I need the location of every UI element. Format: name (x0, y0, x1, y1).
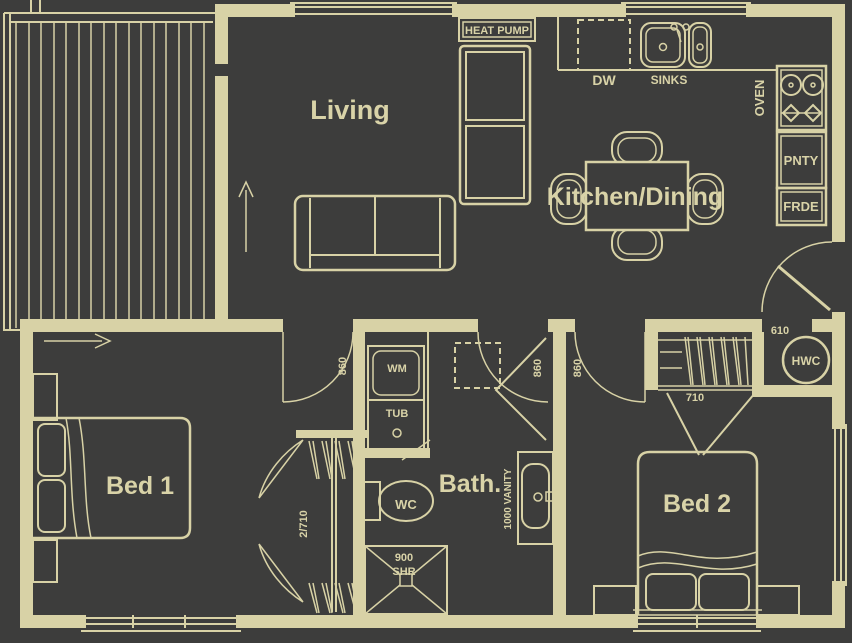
living-room (239, 18, 535, 270)
deck-boards (16, 22, 204, 328)
walls (20, 4, 845, 628)
bed1-door-dim: 860 (337, 357, 349, 375)
sinks-icon (641, 23, 711, 67)
bath-door (478, 332, 548, 440)
wall-mid-stub (548, 319, 575, 332)
pantry-label: PNTY (784, 153, 819, 168)
heat-pump-label: HEAT PUMP (465, 25, 529, 37)
bed2-room (594, 337, 829, 615)
vanity-label: 1000 VANITY (503, 468, 514, 529)
fridge-label: FRDE (783, 199, 819, 214)
bed1-label: Bed 1 (106, 472, 174, 500)
sinks-label: SINKS (651, 73, 688, 87)
wall-mid-seg2 (353, 319, 478, 332)
window-living (290, 3, 457, 17)
window-bed1-bottom (81, 615, 241, 631)
wall-mid-seg4 (812, 319, 845, 332)
wall-mid-seg3 (645, 319, 762, 332)
wall-bottom-mid (237, 615, 637, 628)
deck-border (4, 13, 215, 331)
wardrobe-doors (259, 440, 303, 602)
dishwasher-label: DW (592, 72, 616, 88)
bed2-icon (633, 452, 762, 615)
bed2-label: Bed 2 (663, 490, 731, 518)
bed2-door-dim: 860 (572, 359, 584, 377)
wall-right-upper (832, 4, 845, 242)
hot-water-label: HWC (792, 354, 821, 368)
wall-hwc-bottom (752, 385, 845, 397)
living-label: Living (310, 95, 390, 125)
deck (4, 0, 215, 331)
kitchen-opening-dim: 610 (771, 325, 789, 337)
wall-left (20, 319, 33, 628)
bedside-table (757, 586, 799, 615)
tv-cabinet (460, 46, 530, 204)
window-bed2-bottom (633, 615, 761, 631)
labels: Living Kitchen/Dining Bed 1 Bed 2 Bath. … (106, 25, 821, 578)
bath-door-dim: 860 (532, 359, 544, 377)
shower-width-label: 900 (395, 552, 413, 564)
floor-plan-drawing: Living Kitchen/Dining Bed 1 Bed 2 Bath. … (0, 0, 852, 643)
bedside-table (33, 540, 57, 582)
wall-bath-bed2 (553, 332, 566, 615)
window-kitchen (621, 3, 751, 17)
linen-door-leaves (667, 393, 755, 455)
bedside-table (33, 374, 57, 420)
entry-arrow-right (44, 334, 110, 348)
toilet-label: WC (395, 497, 417, 512)
oven-label: OVEN (752, 80, 767, 117)
sofa-icon (295, 196, 455, 270)
bedside-table (594, 586, 636, 615)
cooktop-icon (777, 66, 826, 130)
hall-laundry (283, 332, 645, 460)
wall-deck-upper (215, 4, 228, 64)
vanity-icon (518, 452, 554, 544)
wall-mid-seg1 (20, 319, 283, 332)
floor-plan: Living Kitchen/Dining Bed 1 Bed 2 Bath. … (0, 0, 852, 643)
kitchen-dining-label: Kitchen/Dining (547, 183, 723, 211)
windows (81, 3, 846, 631)
wall-hwc-left (752, 332, 764, 392)
window-bed2-right (832, 424, 846, 586)
bed2-door (575, 332, 645, 402)
shower-label: SHR (392, 566, 415, 578)
linen-door-dim: 710 (686, 392, 704, 404)
deck-corner-posts (31, 0, 40, 13)
bed2-closet (658, 337, 755, 455)
attic-hatch (455, 343, 500, 388)
bath-label: Bath. (439, 470, 502, 498)
washing-machine-label: WM (387, 363, 407, 375)
bed1-room (33, 334, 358, 613)
laundry-tub-label: TUB (386, 408, 409, 420)
wall-deck-lower (215, 76, 228, 332)
wall-closet-left (645, 332, 658, 390)
wardrobe-doors-dim: 2/710 (298, 510, 310, 538)
wall-wardrobe-top (296, 430, 368, 438)
entry-door-kitchen (762, 242, 832, 312)
entry-arrow-up (239, 182, 253, 252)
dishwasher-icon (578, 20, 630, 70)
wall-bottom-right (757, 615, 845, 628)
